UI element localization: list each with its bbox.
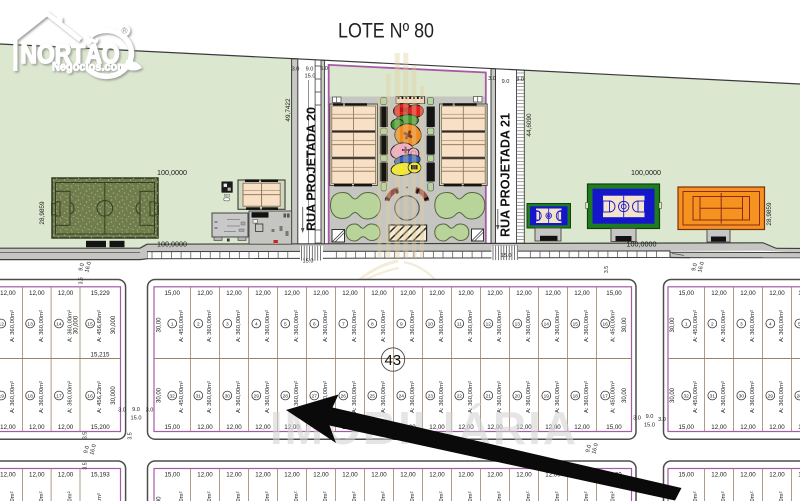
svg-text:13: 13 (27, 321, 33, 327)
svg-text:A: 360,00m²: A: 360,00m² (207, 491, 213, 501)
svg-text:3.5: 3.5 (604, 266, 610, 273)
svg-text:A: 360,00m²: A: 360,00m² (294, 491, 300, 501)
svg-text:44,6090: 44,6090 (526, 113, 533, 137)
svg-text:3.0: 3.0 (488, 76, 496, 82)
svg-text:15: 15 (87, 321, 93, 327)
svg-text:12,00: 12,00 (313, 290, 329, 297)
svg-text:12,00: 12,00 (458, 471, 474, 478)
svg-text:15.0: 15.0 (644, 423, 655, 429)
svg-text:12,00: 12,00 (255, 424, 271, 431)
svg-text:3.0: 3.0 (516, 77, 524, 83)
svg-text:LOTE Nº 80: LOTE Nº 80 (338, 20, 434, 43)
svg-text:3.5: 3.5 (79, 277, 85, 284)
svg-text:30,00: 30,00 (670, 317, 676, 333)
svg-text:A: 360,00m²: A: 360,00m² (497, 491, 503, 501)
svg-text:12,00: 12,00 (516, 471, 532, 478)
svg-text:12,00: 12,00 (769, 290, 785, 297)
svg-text:3.0: 3.0 (146, 408, 154, 414)
svg-text:29: 29 (254, 393, 260, 399)
svg-text:12,00: 12,00 (516, 290, 532, 297)
svg-text:A: 360,00m²: A: 360,00m² (381, 491, 387, 501)
svg-text:Negócios.com: Negócios.com (52, 60, 127, 74)
svg-text:A: 450,00m²: A: 450,00m² (179, 310, 185, 342)
svg-text:19: 19 (544, 393, 550, 399)
svg-text:A: 360,00m²: A: 360,00m² (265, 310, 271, 342)
svg-text:17: 17 (56, 393, 62, 399)
svg-text:43: 43 (384, 352, 401, 369)
svg-text:12,00: 12,00 (342, 471, 358, 478)
svg-text:®: ® (121, 25, 128, 35)
svg-text:A: 450,00m²: A: 450,00m² (611, 310, 617, 342)
svg-text:30,00: 30,00 (157, 387, 163, 403)
svg-text:14: 14 (544, 321, 550, 327)
svg-text:12,00: 12,00 (197, 424, 213, 431)
svg-text:A: 360,00m²: A: 360,00m² (468, 310, 474, 342)
svg-text:A: 450,00m²: A: 450,00m² (179, 491, 185, 501)
svg-text:A: 360,00m²: A: 360,00m² (381, 310, 387, 342)
svg-text:20: 20 (515, 393, 521, 399)
svg-text:12,00: 12,00 (284, 471, 300, 478)
svg-text:31: 31 (196, 393, 202, 399)
svg-text:12,00: 12,00 (0, 471, 16, 478)
svg-text:A: 360,00m²: A: 360,00m² (323, 310, 329, 342)
svg-text:15,229: 15,229 (91, 290, 110, 297)
svg-text:A: 360,00m²: A: 360,00m² (439, 491, 445, 501)
svg-text:A: 360,00m²: A: 360,00m² (555, 310, 561, 342)
svg-text:9: 9 (400, 321, 403, 327)
svg-text:A: 450,00m²: A: 450,00m² (693, 310, 699, 342)
svg-text:15,00: 15,00 (164, 424, 180, 431)
svg-text:A: 360,00m²: A: 360,00m² (68, 381, 74, 413)
svg-text:6: 6 (313, 321, 316, 327)
svg-text:12,00: 12,00 (197, 471, 213, 478)
svg-text:12,00: 12,00 (29, 471, 45, 478)
svg-text:32: 32 (684, 393, 690, 399)
svg-text:12,00: 12,00 (769, 471, 785, 478)
svg-text:A: 360,00m²: A: 360,00m² (584, 381, 590, 413)
svg-text:2: 2 (711, 321, 714, 327)
svg-text:30,00: 30,00 (157, 496, 163, 501)
svg-text:A: 360,00m²: A: 360,00m² (236, 381, 242, 413)
svg-text:A: 360,00m²: A: 360,00m² (68, 491, 74, 501)
svg-text:15,00: 15,00 (164, 471, 180, 478)
svg-text:17: 17 (603, 393, 609, 399)
svg-text:A: 360,00m²: A: 360,00m² (779, 381, 785, 413)
svg-text:5.0: 5.0 (320, 66, 328, 72)
svg-text:15,193: 15,193 (91, 471, 110, 478)
svg-text:A: 360,00m²: A: 360,00m² (10, 310, 16, 342)
svg-text:A: 360,00m²: A: 360,00m² (207, 310, 213, 342)
svg-text:A: 360,00m²: A: 360,00m² (526, 310, 532, 342)
svg-text:A: 360,00m²: A: 360,00m² (584, 491, 590, 501)
svg-text:12,00: 12,00 (429, 290, 445, 297)
svg-text:A: 450,00m²: A: 450,00m² (611, 491, 617, 501)
svg-text:10: 10 (428, 321, 434, 327)
svg-text:12,00: 12,00 (400, 290, 416, 297)
svg-text:31: 31 (710, 393, 716, 399)
svg-text:24: 24 (399, 393, 405, 399)
svg-text:12,00: 12,00 (740, 424, 756, 431)
svg-text:9.0: 9.0 (306, 66, 314, 72)
svg-text:A: 360,00m²: A: 360,00m² (294, 310, 300, 342)
svg-text:12,00: 12,00 (197, 290, 213, 297)
svg-text:16: 16 (603, 321, 609, 327)
svg-text:12,00: 12,00 (545, 290, 561, 297)
svg-text:29: 29 (768, 393, 774, 399)
svg-text:A: 360,00m²: A: 360,00m² (526, 491, 532, 501)
svg-text:A: 360,00m²: A: 360,00m² (410, 310, 416, 342)
svg-text:100,0000: 100,0000 (157, 239, 187, 248)
svg-text:16: 16 (87, 393, 93, 399)
svg-text:A: 360,00m²: A: 360,00m² (323, 491, 329, 501)
svg-text:12,00: 12,00 (0, 290, 16, 297)
svg-text:4: 4 (255, 321, 258, 327)
svg-text:12,00: 12,00 (371, 471, 387, 478)
svg-text:12,00: 12,00 (740, 471, 756, 478)
svg-text:30,000: 30,000 (111, 315, 117, 334)
svg-text:28,9859: 28,9859 (766, 202, 773, 226)
svg-text:15,00: 15,00 (164, 290, 180, 297)
svg-text:12,00: 12,00 (458, 290, 474, 297)
svg-text:27: 27 (312, 393, 318, 399)
svg-text:30: 30 (739, 393, 745, 399)
svg-text:15.0: 15.0 (501, 253, 512, 259)
svg-text:A: 360,00m²: A: 360,00m² (721, 381, 727, 413)
svg-text:12,00: 12,00 (226, 290, 242, 297)
svg-text:15,200: 15,200 (91, 424, 110, 431)
svg-text:A: 360,00m²: A: 360,00m² (39, 381, 45, 413)
svg-text:12,00: 12,00 (0, 424, 16, 431)
svg-text:A: 360,00m²: A: 360,00m² (721, 491, 727, 501)
svg-text:15,215: 15,215 (91, 352, 110, 359)
svg-text:28: 28 (797, 393, 800, 399)
svg-text:A: 360,00m²: A: 360,00m² (207, 381, 213, 413)
svg-text:A: 456,23m²: A: 456,23m² (97, 381, 103, 413)
svg-text:15.0: 15.0 (305, 74, 316, 80)
svg-text:13: 13 (515, 321, 521, 327)
svg-text:9.0: 9.0 (132, 407, 140, 413)
svg-text:8: 8 (371, 321, 374, 327)
svg-text:15.0: 15.0 (303, 259, 314, 265)
svg-text:15.0: 15.0 (131, 416, 142, 422)
svg-text:15: 15 (573, 321, 579, 327)
svg-text:A: 360,00m²: A: 360,00m² (750, 381, 756, 413)
svg-text:3.5: 3.5 (83, 432, 89, 439)
svg-text:3.5: 3.5 (128, 432, 134, 439)
svg-text:15,00: 15,00 (678, 290, 694, 297)
svg-text:12,00: 12,00 (769, 424, 785, 431)
svg-text:A: 456,1m²: A: 456,1m² (97, 493, 103, 501)
svg-text:A: 360,00m²: A: 360,00m² (39, 310, 45, 342)
svg-text:12,00: 12,00 (58, 424, 74, 431)
svg-text:A: 450,00m²: A: 450,00m² (693, 491, 699, 501)
svg-text:28: 28 (283, 393, 289, 399)
svg-text:A: 360,00m²: A: 360,00m² (10, 381, 16, 413)
svg-text:A: 360,00m²: A: 360,00m² (265, 491, 271, 501)
svg-text:A: 360,00m²: A: 360,00m² (10, 491, 16, 501)
svg-text:14: 14 (56, 321, 62, 327)
svg-text:12,00: 12,00 (487, 290, 503, 297)
svg-text:30,00: 30,00 (622, 387, 628, 403)
svg-text:30,00: 30,00 (157, 317, 163, 333)
svg-text:A: 450,00m²: A: 450,00m² (179, 381, 185, 413)
svg-text:23: 23 (428, 393, 434, 399)
svg-text:A: 360,00m²: A: 360,00m² (352, 491, 358, 501)
svg-text:12,00: 12,00 (313, 471, 329, 478)
svg-text:15,00: 15,00 (606, 290, 622, 297)
svg-text:18: 18 (573, 393, 579, 399)
svg-text:A: 360,00m²: A: 360,00m² (721, 310, 727, 342)
svg-text:4: 4 (769, 321, 772, 327)
svg-text:3: 3 (226, 321, 229, 327)
svg-text:12,00: 12,00 (740, 290, 756, 297)
svg-text:A: 360,00m²: A: 360,00m² (497, 310, 503, 342)
svg-text:18: 18 (27, 393, 33, 399)
svg-text:12,00: 12,00 (29, 424, 45, 431)
svg-text:3.5: 3.5 (83, 462, 89, 469)
svg-text:30,00: 30,00 (622, 317, 628, 333)
svg-text:A: 360,00m²: A: 360,00m² (410, 491, 416, 501)
svg-text:30,000: 30,000 (111, 386, 117, 405)
svg-text:12,00: 12,00 (711, 290, 727, 297)
svg-text:12,00: 12,00 (226, 424, 242, 431)
svg-text:A: 360,00m²: A: 360,00m² (39, 491, 45, 501)
svg-text:A: 360,00m²: A: 360,00m² (584, 310, 590, 342)
svg-text:A: 360,00m²: A: 360,00m² (750, 310, 756, 342)
svg-text:A: 360,00m²: A: 360,00m² (750, 491, 756, 501)
svg-text:9.0: 9.0 (646, 414, 654, 420)
svg-text:12,00: 12,00 (58, 290, 74, 297)
svg-text:A: 360,00m²: A: 360,00m² (468, 491, 474, 501)
svg-text:7: 7 (342, 321, 345, 327)
svg-text:12,00: 12,00 (429, 471, 445, 478)
svg-text:12,00: 12,00 (58, 471, 74, 478)
svg-text:30: 30 (225, 393, 231, 399)
svg-text:30,000: 30,000 (74, 315, 80, 334)
svg-text:RUA PROJETADA 20: RUA PROJETADA 20 (305, 107, 319, 231)
svg-text:100,0000: 100,0000 (631, 168, 661, 177)
svg-text:A: 360,00m²: A: 360,00m² (779, 491, 785, 501)
svg-text:A: 450,00m²: A: 450,00m² (611, 381, 617, 413)
svg-text:12,00: 12,00 (284, 290, 300, 297)
svg-text:9.0: 9.0 (502, 79, 510, 85)
svg-text:12,00: 12,00 (400, 471, 416, 478)
svg-text:12: 12 (0, 321, 4, 327)
svg-text:A: 360,00m²: A: 360,00m² (555, 491, 561, 501)
svg-text:3.0: 3.0 (292, 66, 300, 72)
svg-text:15,00: 15,00 (678, 471, 694, 478)
svg-text:15,00: 15,00 (606, 424, 622, 431)
svg-text:3.0: 3.0 (633, 416, 641, 422)
svg-text:A: 456,65m²: A: 456,65m² (97, 310, 103, 342)
svg-text:A: 360,00m²: A: 360,00m² (439, 310, 445, 342)
svg-text:5: 5 (284, 321, 287, 327)
svg-text:A: 360,00m²: A: 360,00m² (236, 491, 242, 501)
svg-text:25: 25 (370, 393, 376, 399)
svg-text:12,00: 12,00 (255, 471, 271, 478)
svg-text:12,00: 12,00 (711, 471, 727, 478)
svg-text:22: 22 (457, 393, 463, 399)
svg-text:A: 360,00m²: A: 360,00m² (236, 310, 242, 342)
svg-text:32: 32 (170, 393, 176, 399)
svg-text:21: 21 (486, 393, 492, 399)
svg-text:A: 360,00m²: A: 360,00m² (352, 310, 358, 342)
svg-text:1: 1 (171, 321, 174, 327)
svg-text:3.0: 3.0 (658, 417, 666, 423)
svg-text:100,0000: 100,0000 (157, 168, 187, 177)
svg-text:12,00: 12,00 (711, 424, 727, 431)
svg-text:12,00: 12,00 (371, 290, 387, 297)
svg-text:12,00: 12,00 (574, 290, 590, 297)
svg-text:A: 450,00m²: A: 450,00m² (693, 381, 699, 413)
svg-text:2: 2 (197, 321, 200, 327)
svg-text:11: 11 (457, 321, 462, 327)
svg-text:12: 12 (486, 321, 492, 327)
svg-text:RUA PROJETADA 21: RUA PROJETADA 21 (499, 113, 513, 237)
svg-text:A: 360,00m²: A: 360,00m² (779, 310, 785, 342)
svg-text:3.0: 3.0 (118, 408, 126, 414)
svg-text:3: 3 (740, 321, 743, 327)
svg-text:12,00: 12,00 (226, 471, 242, 478)
svg-text:30,00: 30,00 (670, 387, 676, 403)
svg-text:15,00: 15,00 (678, 424, 694, 431)
svg-text:1: 1 (685, 321, 688, 327)
svg-text:28,9859: 28,9859 (39, 201, 46, 225)
svg-text:19: 19 (0, 393, 4, 399)
svg-text:12,00: 12,00 (255, 290, 271, 297)
svg-text:26: 26 (341, 393, 347, 399)
svg-text:12,00: 12,00 (29, 290, 45, 297)
svg-text:49,7422: 49,7422 (285, 98, 292, 122)
svg-text:12,00: 12,00 (342, 290, 358, 297)
svg-text:6C3: 6C3 (224, 193, 230, 197)
svg-text:12,00: 12,00 (487, 471, 503, 478)
svg-text:100,0000: 100,0000 (627, 240, 657, 249)
